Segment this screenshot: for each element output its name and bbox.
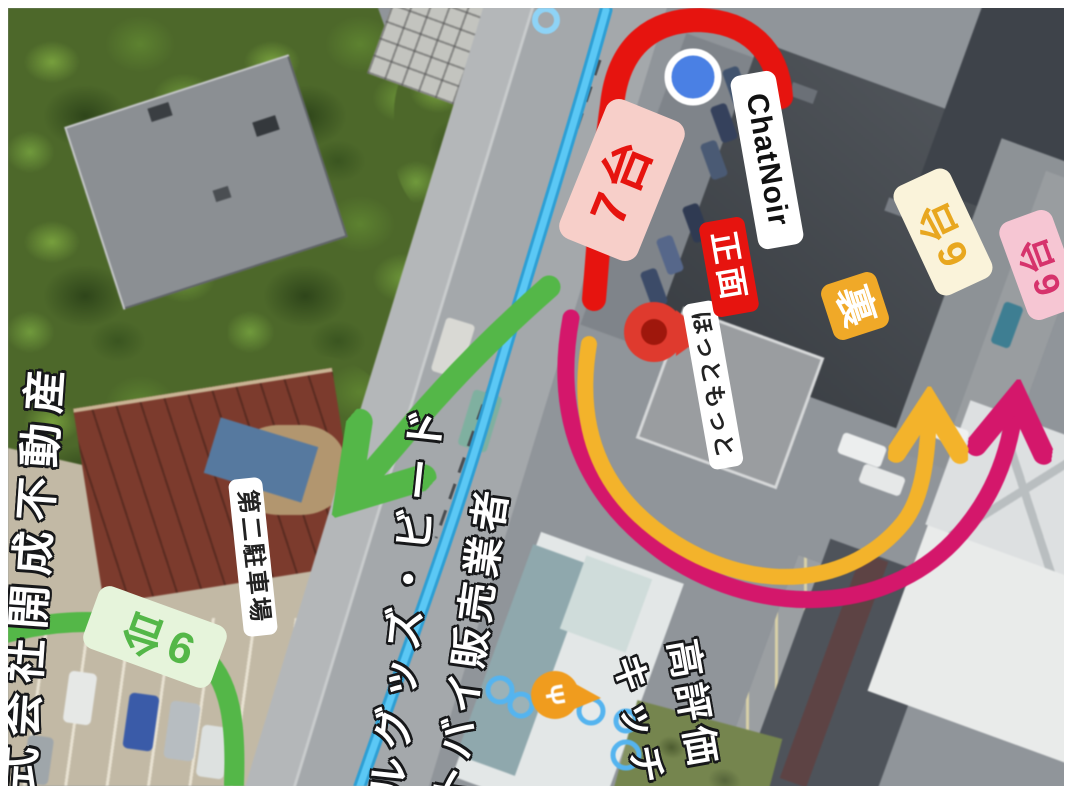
satellite-map: Ψ 式会社開成不動産 ルグッズ・ビード トバイ販売業者 キッチ 高評価 Chat… xyxy=(8,8,1064,786)
green-route-arrow xyxy=(352,287,549,495)
magenta-route-arrow xyxy=(566,318,1016,600)
parking-access-map[interactable]: Ψ 式会社開成不動産 ルグッズ・ビード トバイ販売業者 キッチ 高評価 Chat… xyxy=(0,0,1072,800)
stop-ring xyxy=(510,694,532,716)
route-node-ring xyxy=(535,9,557,31)
location-dot-icon[interactable] xyxy=(668,52,718,102)
stop-ring xyxy=(488,678,512,702)
